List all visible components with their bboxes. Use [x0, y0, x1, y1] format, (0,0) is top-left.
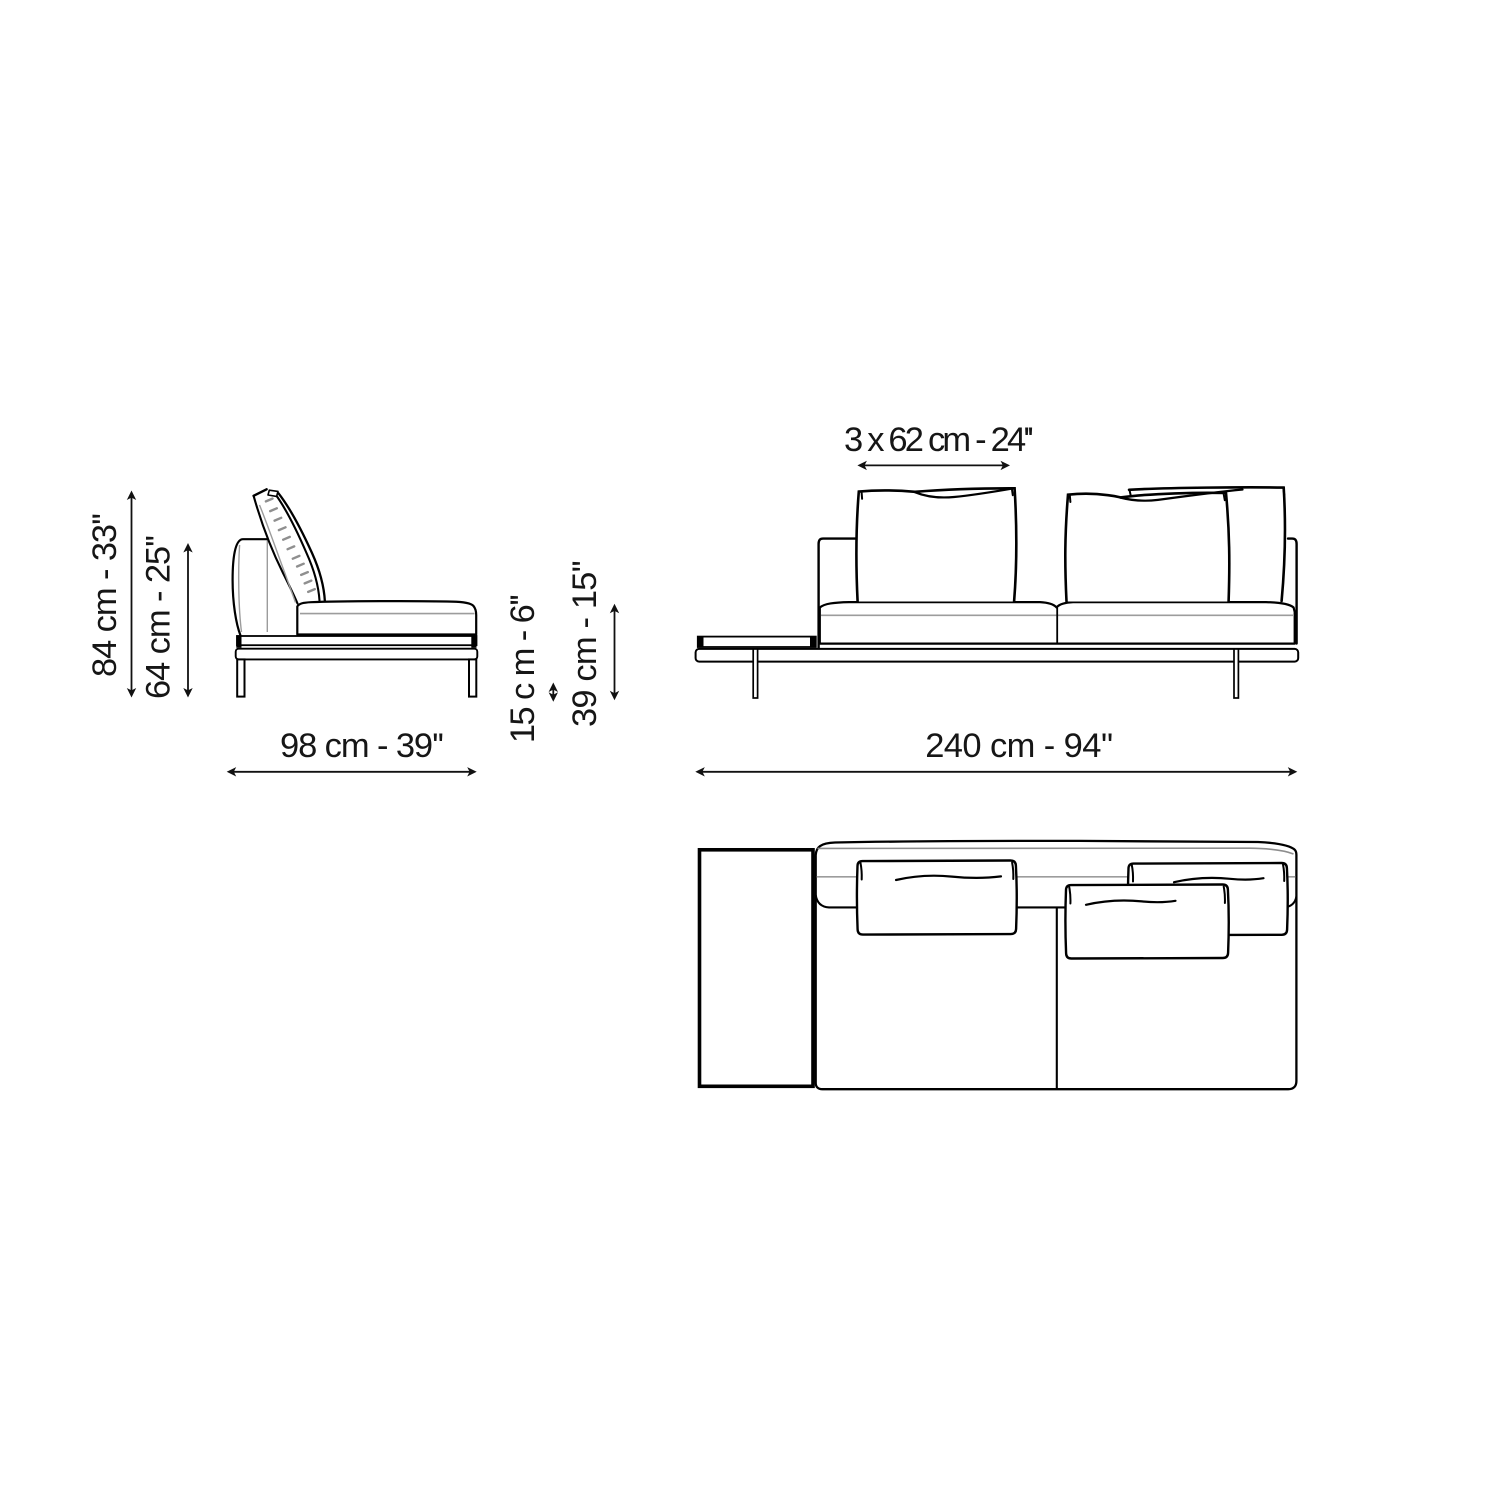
svg-text:240 cm - 94'': 240 cm - 94''	[925, 727, 1113, 765]
svg-text:39 cm - 15'': 39 cm - 15''	[566, 561, 604, 727]
svg-text:15 c m - 6'': 15 c m - 6''	[504, 596, 542, 743]
svg-text:64 cm - 25'': 64 cm - 25''	[140, 536, 178, 699]
svg-text:98 cm - 39'': 98 cm - 39''	[280, 727, 443, 765]
svg-text:84 cm - 33'': 84 cm - 33''	[86, 514, 124, 677]
svg-text:3 x 62 cm - 24'': 3 x 62 cm - 24''	[844, 421, 1032, 459]
